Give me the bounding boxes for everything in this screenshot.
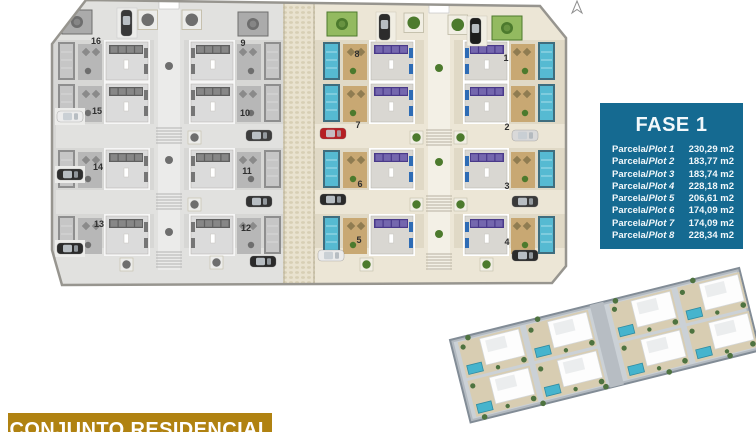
parcel-area: 228,34 m2 bbox=[682, 230, 734, 242]
plot-number: 3 bbox=[504, 181, 509, 191]
car-icon bbox=[320, 194, 346, 205]
phase1-plan-color bbox=[315, 0, 566, 290]
project-banner-text: CONJUNTO RESIDENCIAL bbox=[10, 419, 271, 432]
north-arrow-icon bbox=[572, 1, 582, 13]
site-plan: 16915101411131281726354 bbox=[52, 0, 566, 290]
parcel-area: 206,61 m2 bbox=[682, 193, 734, 205]
plot-unit bbox=[189, 214, 281, 256]
fase1-title: FASE 1 bbox=[600, 114, 743, 137]
car-icon bbox=[246, 196, 272, 207]
plot-unit bbox=[463, 214, 555, 256]
tree-icon bbox=[435, 230, 443, 238]
divider-road bbox=[283, 0, 315, 290]
tree-icon bbox=[188, 198, 201, 211]
plot-unit bbox=[323, 148, 415, 190]
plot-unit bbox=[189, 82, 281, 124]
car-icon bbox=[250, 256, 276, 267]
car-icon bbox=[379, 14, 390, 40]
tree-icon bbox=[165, 156, 173, 164]
parcel-row: Parcela/Plot 6 174,09 m2 bbox=[612, 205, 734, 217]
red-car-icon bbox=[320, 128, 346, 139]
car-icon bbox=[318, 250, 344, 261]
parcel-area: 174,09 m2 bbox=[682, 218, 734, 230]
tree-icon bbox=[404, 13, 424, 33]
plot-number: 4 bbox=[504, 237, 509, 247]
tree-icon bbox=[210, 256, 223, 269]
tree-icon bbox=[435, 158, 443, 166]
tree-icon bbox=[454, 198, 467, 211]
tree-icon bbox=[182, 10, 202, 30]
car-icon bbox=[57, 111, 83, 122]
plot-unit bbox=[323, 214, 415, 256]
plot-number: 15 bbox=[92, 106, 102, 116]
tree-icon bbox=[188, 131, 201, 144]
garden-icon bbox=[238, 12, 268, 36]
plot-unit bbox=[463, 40, 555, 82]
project-banner: CONJUNTO RESIDENCIAL bbox=[8, 413, 272, 432]
plot-number: 5 bbox=[356, 235, 361, 245]
car-icon bbox=[246, 130, 272, 141]
brochure-page: 16915101411131281726354 FASE 1 Parcela/P… bbox=[0, 0, 756, 432]
plot-number: 14 bbox=[93, 162, 103, 172]
parcel-area: 183,74 m2 bbox=[682, 169, 734, 181]
tree-icon bbox=[138, 10, 158, 30]
parcel-area: 183,77 m2 bbox=[682, 156, 734, 168]
plot-number: 8 bbox=[354, 49, 359, 59]
parcel-label: Parcela/Plot 6 bbox=[612, 205, 674, 217]
aerial-render-3d bbox=[450, 266, 756, 424]
plot-unit bbox=[323, 82, 415, 124]
car-icon bbox=[121, 10, 132, 36]
tree-icon bbox=[480, 258, 493, 271]
car-icon bbox=[470, 18, 481, 44]
tree-icon bbox=[410, 198, 423, 211]
tree-icon bbox=[165, 228, 173, 236]
parcel-list: Parcela/Plot 1 230,29 m2 Parcela/Plot 2 … bbox=[612, 144, 734, 242]
car-icon bbox=[512, 130, 538, 141]
tree-icon bbox=[410, 131, 423, 144]
tree-icon bbox=[360, 258, 373, 271]
parcel-label: Parcela/Plot 5 bbox=[612, 193, 674, 205]
tree-icon bbox=[120, 258, 133, 271]
plot-number: 2 bbox=[504, 122, 509, 132]
entrance-gate bbox=[429, 5, 449, 13]
car-icon bbox=[512, 196, 538, 207]
plot-unit bbox=[463, 82, 555, 124]
garden-icon bbox=[492, 16, 522, 40]
car-icon bbox=[57, 169, 83, 180]
parcel-area: 174,09 m2 bbox=[682, 205, 734, 217]
parcel-row: Parcela/Plot 3 183,74 m2 bbox=[612, 169, 734, 181]
plot-number: 10 bbox=[240, 108, 250, 118]
plot-number: 13 bbox=[94, 219, 104, 229]
plot-number: 1 bbox=[503, 53, 508, 63]
parcel-label: Parcela/Plot 3 bbox=[612, 169, 674, 181]
plot-number: 12 bbox=[241, 223, 251, 233]
parcel-area: 228,18 m2 bbox=[682, 181, 734, 193]
tree-icon bbox=[454, 131, 467, 144]
plot-unit bbox=[323, 40, 415, 82]
car-icon bbox=[57, 243, 83, 254]
parcel-row: Parcela/Plot 5 206,61 m2 bbox=[612, 193, 734, 205]
parcel-row: Parcela/Plot 8 228,34 m2 bbox=[612, 230, 734, 242]
tree-icon bbox=[435, 64, 443, 72]
garden-icon bbox=[327, 12, 357, 36]
plot-unit bbox=[58, 40, 150, 82]
plot-unit bbox=[189, 148, 281, 190]
parcel-area: 230,29 m2 bbox=[682, 144, 734, 156]
parcel-label: Parcela/Plot 1 bbox=[612, 144, 674, 156]
tree-icon bbox=[448, 15, 468, 35]
parcel-row: Parcela/Plot 1 230,29 m2 bbox=[612, 144, 734, 156]
plot-number: 16 bbox=[91, 36, 101, 46]
phase2-plan-gray bbox=[52, 0, 283, 290]
parcel-row: Parcela/Plot 2 183,77 m2 bbox=[612, 156, 734, 168]
parcel-label: Parcela/Plot 4 bbox=[612, 181, 674, 193]
fase1-panel: FASE 1 Parcela/Plot 1 230,29 m2 Parcela/… bbox=[600, 103, 743, 249]
parcel-row: Parcela/Plot 4 228,18 m2 bbox=[612, 181, 734, 193]
plot-number: 9 bbox=[240, 38, 245, 48]
parcel-row: Parcela/Plot 7 174,09 m2 bbox=[612, 218, 734, 230]
parcel-label: Parcela/Plot 2 bbox=[612, 156, 674, 168]
plot-number: 6 bbox=[357, 179, 362, 189]
plot-number: 11 bbox=[242, 166, 252, 176]
parcel-label: Parcela/Plot 7 bbox=[612, 218, 674, 230]
parcel-label: Parcela/Plot 8 bbox=[612, 230, 674, 242]
plot-number: 7 bbox=[355, 120, 360, 130]
car-icon bbox=[512, 250, 538, 261]
tree-icon bbox=[165, 62, 173, 70]
plot-unit bbox=[189, 40, 281, 82]
